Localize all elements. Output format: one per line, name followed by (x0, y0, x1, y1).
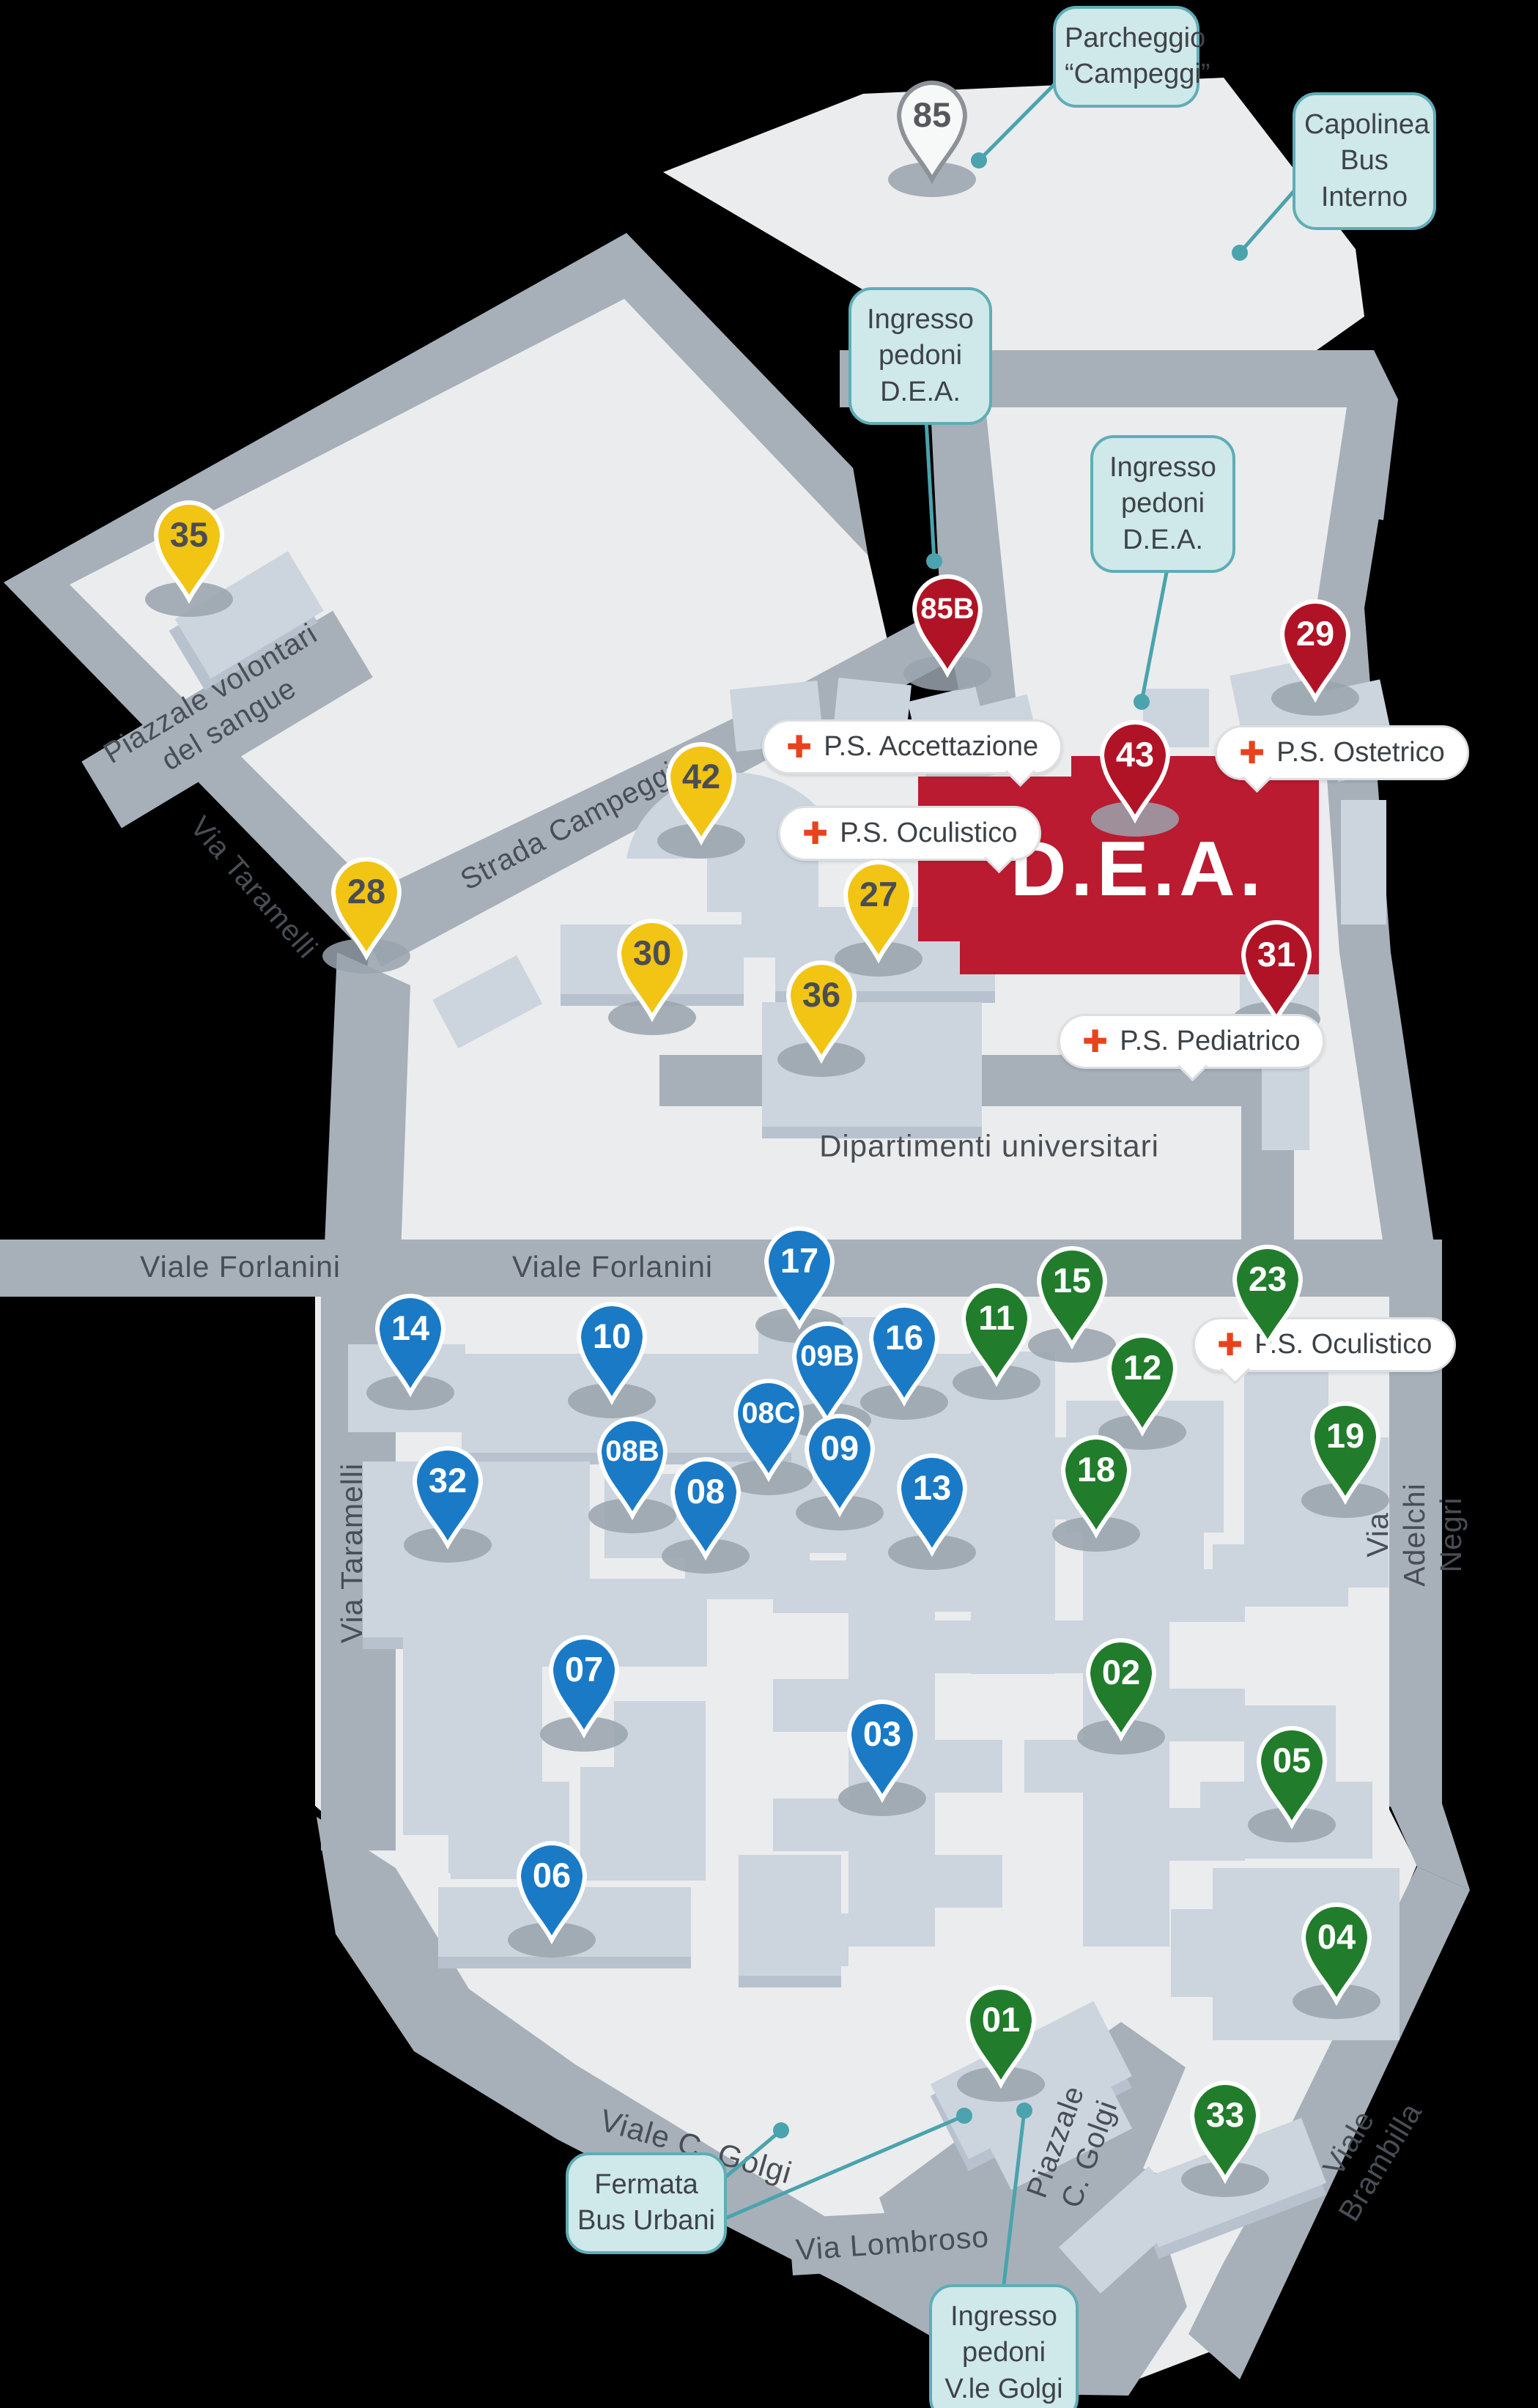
pin-icon: 07 (544, 1629, 624, 1738)
map-pin-15[interactable]: 15 (1032, 1240, 1112, 1349)
pin-icon: 15 (1032, 1240, 1112, 1349)
red-cross-icon: ✚ (1239, 738, 1265, 768)
pin-icon: 23 (1227, 1238, 1308, 1348)
pin-icon: 28 (326, 851, 407, 960)
pin-icon: 18 (1056, 1429, 1136, 1538)
pill-ps-accettazione-label: P.S. Accettazione (824, 731, 1038, 763)
map-pin-04[interactable]: 04 (1296, 1896, 1377, 2006)
pill-ps-accettazione: ✚P.S. Accettazione (762, 719, 1062, 774)
pill-ps-oculistico-1-label: P.S. Oculistico (840, 818, 1017, 849)
pill-ps-ostetrico: ✚P.S. Ostetrico (1215, 725, 1469, 780)
svg-text:30: 30 (633, 933, 671, 972)
svg-text:27: 27 (859, 875, 898, 914)
pill-ps-oculistico-1: ✚P.S. Oculistico (778, 806, 1041, 861)
svg-text:33: 33 (1206, 2095, 1244, 2134)
svg-text:12: 12 (1123, 1348, 1161, 1387)
callout-parcheggio-campeggi: Parcheggio“Campeggi” (1053, 6, 1199, 108)
callout-ingresso-pedoni-vle-golgi-text: V.le Golgi (941, 2371, 1067, 2407)
svg-text:04: 04 (1317, 1917, 1356, 1956)
map-pin-33[interactable]: 33 (1185, 2074, 1265, 2184)
svg-text:32: 32 (429, 1461, 467, 1500)
red-cross-icon: ✚ (786, 732, 812, 763)
map-pin-35[interactable]: 35 (149, 494, 229, 604)
svg-text:29: 29 (1296, 614, 1334, 653)
svg-text:15: 15 (1053, 1261, 1091, 1300)
pin-icon: 85 (892, 74, 972, 184)
svg-text:09B: 09B (800, 1340, 854, 1372)
svg-text:85B: 85B (920, 593, 974, 625)
svg-text:06: 06 (533, 1856, 571, 1894)
svg-text:28: 28 (347, 872, 385, 911)
callout-capolinea-bus-interno: CapolineaBus Interno (1293, 92, 1436, 230)
svg-text:43: 43 (1116, 735, 1154, 774)
map-pin-01[interactable]: 01 (961, 1979, 1041, 2089)
callout-ingresso-pedoni-dea-1-text: D.E.A. (860, 374, 980, 410)
street-label-viale-forlanini-left: Viale Forlanini (140, 1248, 341, 1285)
callout-ingresso-pedoni-dea-2-text: Ingresso (1102, 450, 1224, 486)
pin-icon: 27 (838, 853, 919, 963)
pin-icon: 08B (592, 1410, 673, 1520)
svg-text:08: 08 (687, 1472, 725, 1511)
pin-icon: 19 (1305, 1395, 1386, 1505)
pin-icon: 10 (572, 1295, 652, 1405)
red-cross-icon: ✚ (802, 818, 828, 849)
map-pin-85[interactable]: 85 (892, 74, 972, 184)
pin-icon: 02 (1081, 1631, 1161, 1741)
callout-ingresso-pedoni-dea-1-text: pedoni (860, 338, 980, 374)
svg-text:18: 18 (1077, 1450, 1115, 1489)
pin-icon: 09 (799, 1407, 880, 1517)
callout-capolinea-bus-interno-text: Bus Interno (1304, 143, 1424, 215)
svg-text:03: 03 (863, 1714, 901, 1753)
callout-parcheggio-campeggi-text: “Campeggi” (1065, 56, 1188, 92)
pin-icon: 35 (149, 494, 229, 604)
pin-icon: 03 (842, 1693, 923, 1803)
svg-text:01: 01 (982, 2000, 1020, 2039)
callout-ingresso-pedoni-dea-2: IngressopedoniD.E.A. (1090, 435, 1235, 573)
svg-text:08C: 08C (742, 1397, 795, 1429)
pin-icon: 14 (370, 1287, 451, 1397)
svg-text:02: 02 (1102, 1653, 1140, 1692)
map-pin-05[interactable]: 05 (1252, 1719, 1332, 1829)
map-pin-06[interactable]: 06 (511, 1834, 592, 1944)
pill-ps-pediatrico-label: P.S. Pediatrico (1120, 1026, 1300, 1057)
map-pin-85B[interactable]: 85B (907, 568, 988, 678)
map-pin-16[interactable]: 16 (864, 1297, 944, 1407)
pin-icon: 36 (781, 954, 862, 1064)
street-label-via-taramelli-lower: Via Taramelli (333, 1463, 370, 1643)
map-pin-11[interactable]: 11 (956, 1277, 1037, 1387)
callout-ingresso-pedoni-vle-golgi-text: pedoni (941, 2335, 1067, 2371)
map-pin-23[interactable]: 23 (1227, 1238, 1308, 1348)
svg-text:17: 17 (780, 1241, 818, 1280)
pin-icon: 17 (759, 1220, 840, 1330)
callout-parcheggio-campeggi-text: Parcheggio (1065, 21, 1188, 56)
map-pin-09[interactable]: 09 (799, 1407, 880, 1517)
svg-text:13: 13 (913, 1468, 951, 1507)
map-pin-12[interactable]: 12 (1102, 1327, 1183, 1437)
callout-ingresso-pedoni-vle-golgi: IngressopedoniV.le Golgi (929, 2284, 1079, 2408)
map-pin-08B[interactable]: 08B (592, 1410, 673, 1520)
svg-text:19: 19 (1326, 1416, 1364, 1455)
map-pin-02[interactable]: 02 (1081, 1631, 1161, 1741)
svg-text:42: 42 (682, 757, 720, 796)
callout-capolinea-bus-interno-text: Capolinea (1304, 107, 1424, 143)
svg-text:35: 35 (170, 515, 208, 554)
map-pin-32[interactable]: 32 (407, 1440, 488, 1549)
pin-icon: 08 (665, 1451, 746, 1560)
red-cross-icon: ✚ (1082, 1026, 1108, 1057)
pin-icon: 13 (892, 1447, 972, 1557)
map-pin-31[interactable]: 31 (1236, 914, 1317, 1023)
area-parcheggio-campeggi (663, 78, 1364, 350)
svg-text:08B: 08B (605, 1435, 659, 1467)
pin-icon: 06 (511, 1834, 592, 1944)
pill-ps-ostetrico-label: P.S. Ostetrico (1276, 737, 1445, 768)
svg-text:31: 31 (1257, 935, 1295, 974)
pin-icon: 01 (961, 1979, 1041, 2089)
callout-fermata-bus-urbani: FermataBus Urbani (566, 2152, 727, 2254)
svg-text:36: 36 (802, 975, 840, 1014)
map-pin-07[interactable]: 07 (544, 1629, 624, 1738)
svg-text:16: 16 (885, 1318, 923, 1357)
map-pin-29[interactable]: 29 (1275, 593, 1356, 703)
map-pin-36[interactable]: 36 (781, 954, 862, 1064)
map-canvas: D.E.A. (0, 0, 1538, 2408)
map-pin-43[interactable]: 43 (1095, 714, 1175, 823)
svg-text:14: 14 (391, 1308, 429, 1347)
pin-icon: 32 (407, 1440, 488, 1549)
callout-ingresso-pedoni-vle-golgi-text: Ingresso (941, 2299, 1067, 2335)
svg-text:05: 05 (1273, 1741, 1311, 1779)
map-pin-18[interactable]: 18 (1056, 1429, 1136, 1538)
street-label-viale-forlanini-mid: Viale Forlanini (512, 1248, 713, 1285)
callout-fermata-bus-urbani-text: Fermata (577, 2167, 715, 2203)
callout-ingresso-pedoni-dea-2-text: D.E.A. (1102, 522, 1224, 558)
pin-icon: 31 (1236, 914, 1317, 1023)
map-pin-17[interactable]: 17 (759, 1220, 840, 1330)
pin-icon: 85B (907, 568, 988, 678)
map-pin-08[interactable]: 08 (665, 1451, 746, 1560)
pin-icon: 04 (1296, 1896, 1377, 2006)
svg-text:11: 11 (978, 1298, 1015, 1337)
svg-text:23: 23 (1249, 1259, 1287, 1298)
pin-icon: 42 (661, 736, 742, 845)
pin-icon: 30 (612, 912, 692, 1022)
svg-text:07: 07 (565, 1650, 603, 1689)
pin-icon: 29 (1275, 593, 1356, 703)
pin-icon: 16 (864, 1297, 944, 1407)
svg-text:10: 10 (593, 1316, 631, 1355)
map-pin-19[interactable]: 19 (1305, 1395, 1386, 1505)
pin-icon: 11 (956, 1277, 1037, 1387)
pin-icon: 12 (1102, 1327, 1183, 1437)
callout-ingresso-pedoni-dea-2-text: pedoni (1102, 486, 1224, 522)
svg-text:85: 85 (913, 95, 951, 134)
pin-icon: 33 (1185, 2074, 1265, 2184)
map-pin-27[interactable]: 27 (838, 853, 919, 963)
map-pin-42[interactable]: 42 (661, 736, 742, 845)
pin-icon: 43 (1095, 714, 1175, 823)
map-pin-28[interactable]: 28 (326, 851, 407, 960)
dea-label: D.E.A. (1010, 826, 1265, 912)
area-label-dipartimenti: Dipartimenti universitari (819, 1127, 1159, 1164)
map-pin-30[interactable]: 30 (612, 912, 692, 1022)
callout-fermata-bus-urbani-text: Bus Urbani (577, 2203, 715, 2239)
callout-ingresso-pedoni-dea-1-text: Ingresso (860, 302, 980, 338)
map-pin-14[interactable]: 14 (370, 1287, 451, 1397)
map-pin-10[interactable]: 10 (572, 1295, 652, 1405)
hospital-campus-map: D.E.A. Piazzale volontari del sangueVia … (0, 0, 1538, 2408)
callout-ingresso-pedoni-dea-1: IngressopedoniD.E.A. (849, 287, 992, 425)
map-pin-03[interactable]: 03 (842, 1693, 923, 1803)
svg-text:09: 09 (821, 1429, 859, 1467)
pin-icon: 05 (1252, 1719, 1332, 1829)
map-pin-13[interactable]: 13 (892, 1447, 972, 1557)
